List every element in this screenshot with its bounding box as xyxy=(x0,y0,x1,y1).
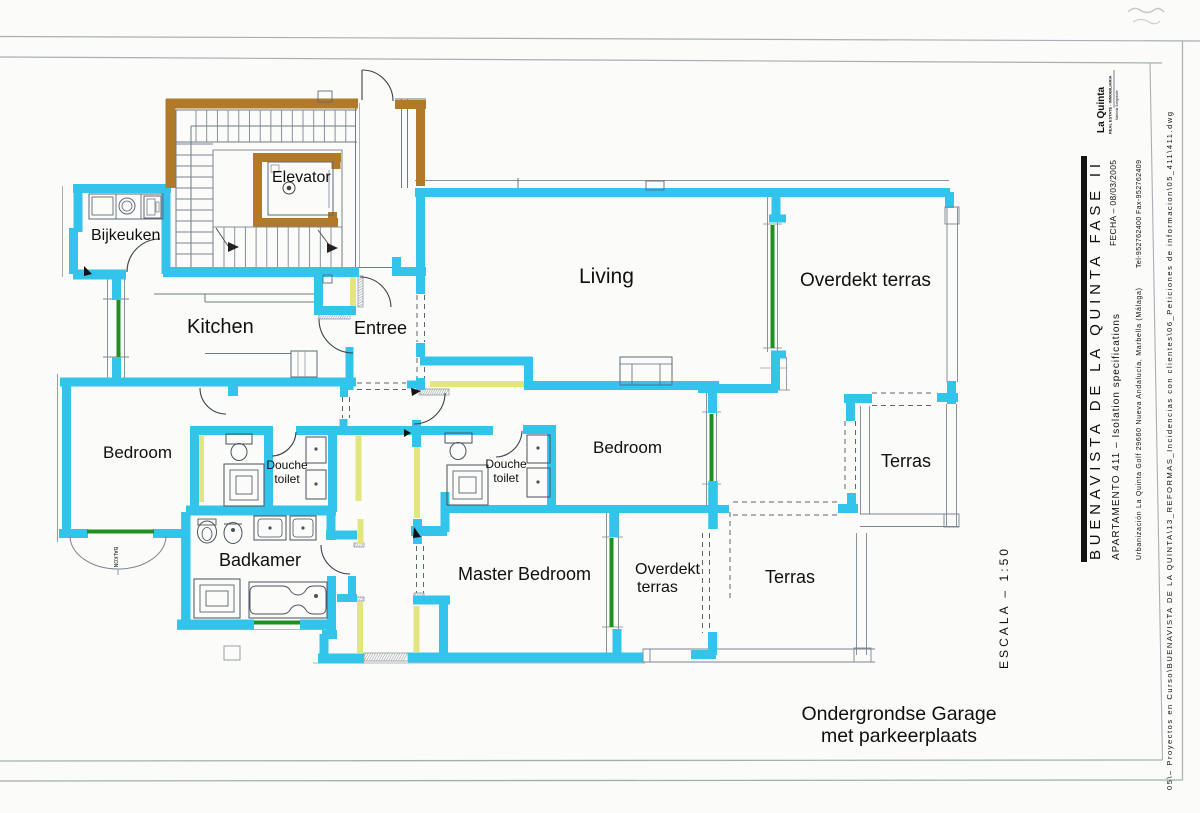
svg-text:Elevator: Elevator xyxy=(272,169,331,186)
svg-text:Marbella Sotogrande: Marbella Sotogrande xyxy=(1115,90,1119,120)
svg-text:APARTAMENTO 411 – Isolation sp: APARTAMENTO 411 – Isolation specificatio… xyxy=(1111,314,1122,560)
svg-text:Tel-952762400 Fax-952762409: Tel-952762400 Fax-952762409 xyxy=(1136,160,1143,268)
svg-text:Urbanización La Quinta Golf 2: Urbanización La Quinta Golf 29660 Nueva … xyxy=(1136,288,1143,560)
svg-text:La Quinta: La Quinta xyxy=(1096,86,1107,133)
svg-text:FECHA – 08/03/2005: FECHA – 08/03/2005 xyxy=(1108,160,1118,246)
svg-text:Overdekt: Overdekt xyxy=(635,561,700,578)
svg-text:terras: terras xyxy=(637,579,678,596)
svg-text:Living: Living xyxy=(579,265,634,288)
svg-text:Badkamer: Badkamer xyxy=(219,550,301,570)
svg-text:REAL ESTATE · INMOBILIARIA: REAL ESTATE · INMOBILIARIA xyxy=(1108,75,1113,134)
svg-text:Master Bedroom: Master Bedroom xyxy=(458,564,591,584)
svg-text:Douche: Douche xyxy=(485,457,527,471)
svg-text:Ondergrondse Garage: Ondergrondse Garage xyxy=(801,703,996,725)
svg-text:toilet: toilet xyxy=(274,472,300,486)
svg-text:Douche: Douche xyxy=(266,458,308,472)
svg-text:Bijkeuken: Bijkeuken xyxy=(91,227,160,244)
svg-text:Entree: Entree xyxy=(354,318,407,338)
svg-text:Bedroom: Bedroom xyxy=(593,438,662,457)
svg-text:Bedroom: Bedroom xyxy=(103,443,172,462)
svg-text:Terras: Terras xyxy=(881,451,931,471)
svg-text:Terras: Terras xyxy=(765,567,815,587)
svg-text:Overdekt terras: Overdekt terras xyxy=(800,270,931,291)
svg-text:Kitchen: Kitchen xyxy=(187,316,254,338)
svg-text:met parkeerplaats: met parkeerplaats xyxy=(821,725,977,747)
svg-text:toilet: toilet xyxy=(493,471,519,485)
svg-text:BALKON: BALKON xyxy=(112,547,118,568)
